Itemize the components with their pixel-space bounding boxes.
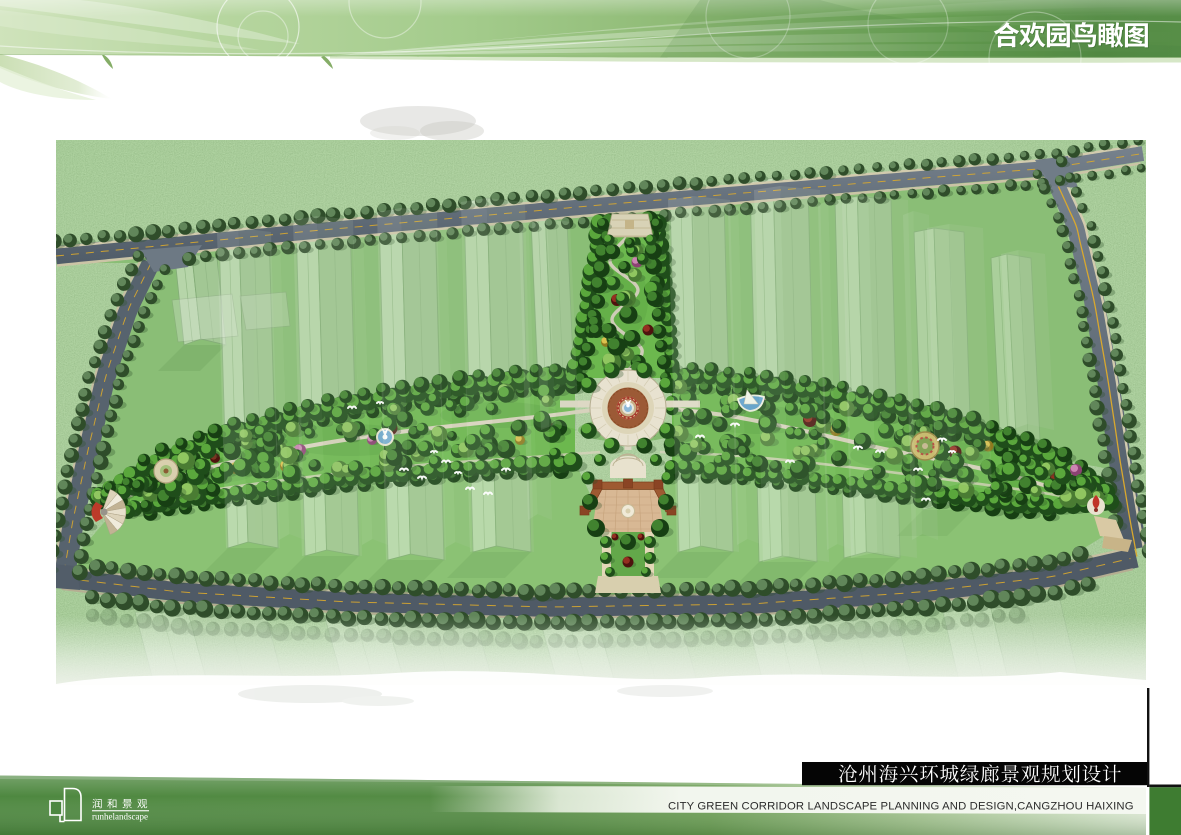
- svg-text:CITY GREEN CORRIDOR LANDSCAPE: CITY GREEN CORRIDOR LANDSCAPE PLANNING A…: [668, 801, 1135, 813]
- svg-text:runhelandscape: runhelandscape: [92, 812, 148, 822]
